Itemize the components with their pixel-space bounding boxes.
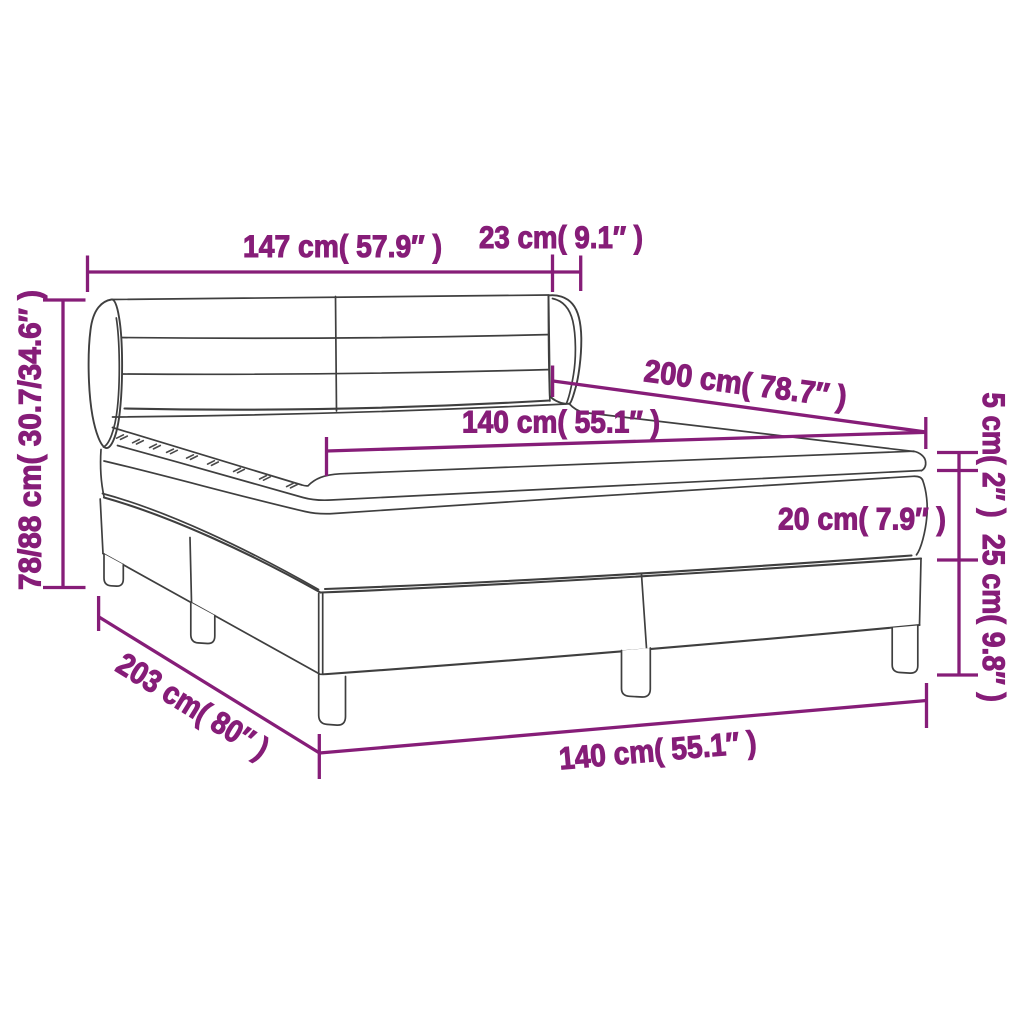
svg-text:20 cm( 7.9″ ): 20 cm( 7.9″ ) xyxy=(778,501,946,537)
svg-text:78/88 cm( 30.7/34.6″ ): 78/88 cm( 30.7/34.6″ ) xyxy=(12,290,48,590)
svg-text:23 cm( 9.1″ ): 23 cm( 9.1″ ) xyxy=(479,219,643,255)
svg-text:147 cm( 57.9″ ): 147 cm( 57.9″ ) xyxy=(243,228,442,264)
svg-text:5 cm( 2″ ): 5 cm( 2″ ) xyxy=(976,393,1012,518)
svg-text:25 cm( 9.8″ ): 25 cm( 9.8″ ) xyxy=(976,534,1012,702)
svg-text:140 cm( 55.1″ ): 140 cm( 55.1″ ) xyxy=(462,404,660,440)
